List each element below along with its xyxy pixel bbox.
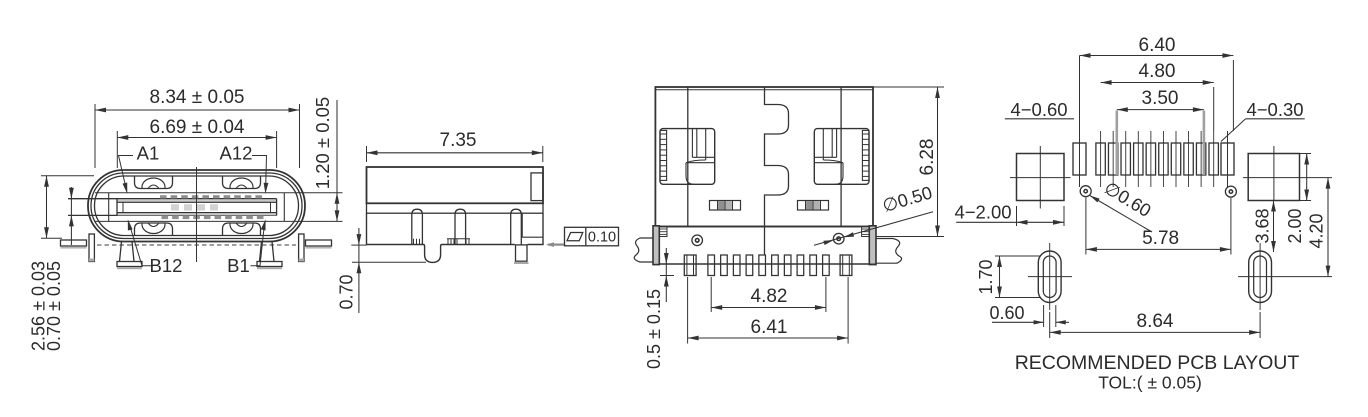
svg-text:4−2.00: 4−2.00 xyxy=(954,202,1011,223)
svg-text:0.60: 0.60 xyxy=(989,303,1024,323)
svg-text:6.28: 6.28 xyxy=(917,139,938,176)
svg-text:RECOMMENDED PCB LAYOUT: RECOMMENDED PCB LAYOUT xyxy=(1015,352,1300,374)
svg-text:4.80: 4.80 xyxy=(1139,61,1176,82)
svg-text:8.64: 8.64 xyxy=(1137,311,1174,332)
svg-text:4.82: 4.82 xyxy=(751,286,788,307)
svg-text:TOL:( ± 0.05): TOL:( ± 0.05) xyxy=(1098,373,1202,393)
svg-text:0.5 ± 0.15: 0.5 ± 0.15 xyxy=(644,289,664,369)
svg-text:4−0.30: 4−0.30 xyxy=(1246,99,1303,120)
svg-text:5.78: 5.78 xyxy=(1142,228,1179,249)
svg-text:1.70: 1.70 xyxy=(976,259,996,294)
svg-text:A1: A1 xyxy=(137,143,160,164)
svg-text:6.69 ± 0.04: 6.69 ± 0.04 xyxy=(150,117,245,138)
svg-text:7.35: 7.35 xyxy=(440,130,477,151)
svg-text:2.00: 2.00 xyxy=(1285,208,1305,243)
svg-text:1.20 ± 0.05: 1.20 ± 0.05 xyxy=(312,97,333,189)
svg-text:4.20: 4.20 xyxy=(1307,213,1327,248)
svg-text:6.40: 6.40 xyxy=(1139,35,1176,56)
svg-text:3.50: 3.50 xyxy=(1142,88,1179,109)
svg-text:0.10: 0.10 xyxy=(588,230,616,246)
svg-text:B12: B12 xyxy=(150,255,183,276)
svg-text:6.41: 6.41 xyxy=(751,317,788,338)
svg-text:3.68: 3.68 xyxy=(1253,208,1273,243)
svg-text:B1: B1 xyxy=(227,255,250,276)
svg-text:A12: A12 xyxy=(220,143,253,164)
svg-text:0.70: 0.70 xyxy=(337,274,357,309)
svg-text:8.34 ± 0.05: 8.34 ± 0.05 xyxy=(150,87,245,108)
svg-text:0.70 ± 0.05: 0.70 ± 0.05 xyxy=(44,261,64,351)
svg-text:4−0.60: 4−0.60 xyxy=(1010,99,1067,120)
